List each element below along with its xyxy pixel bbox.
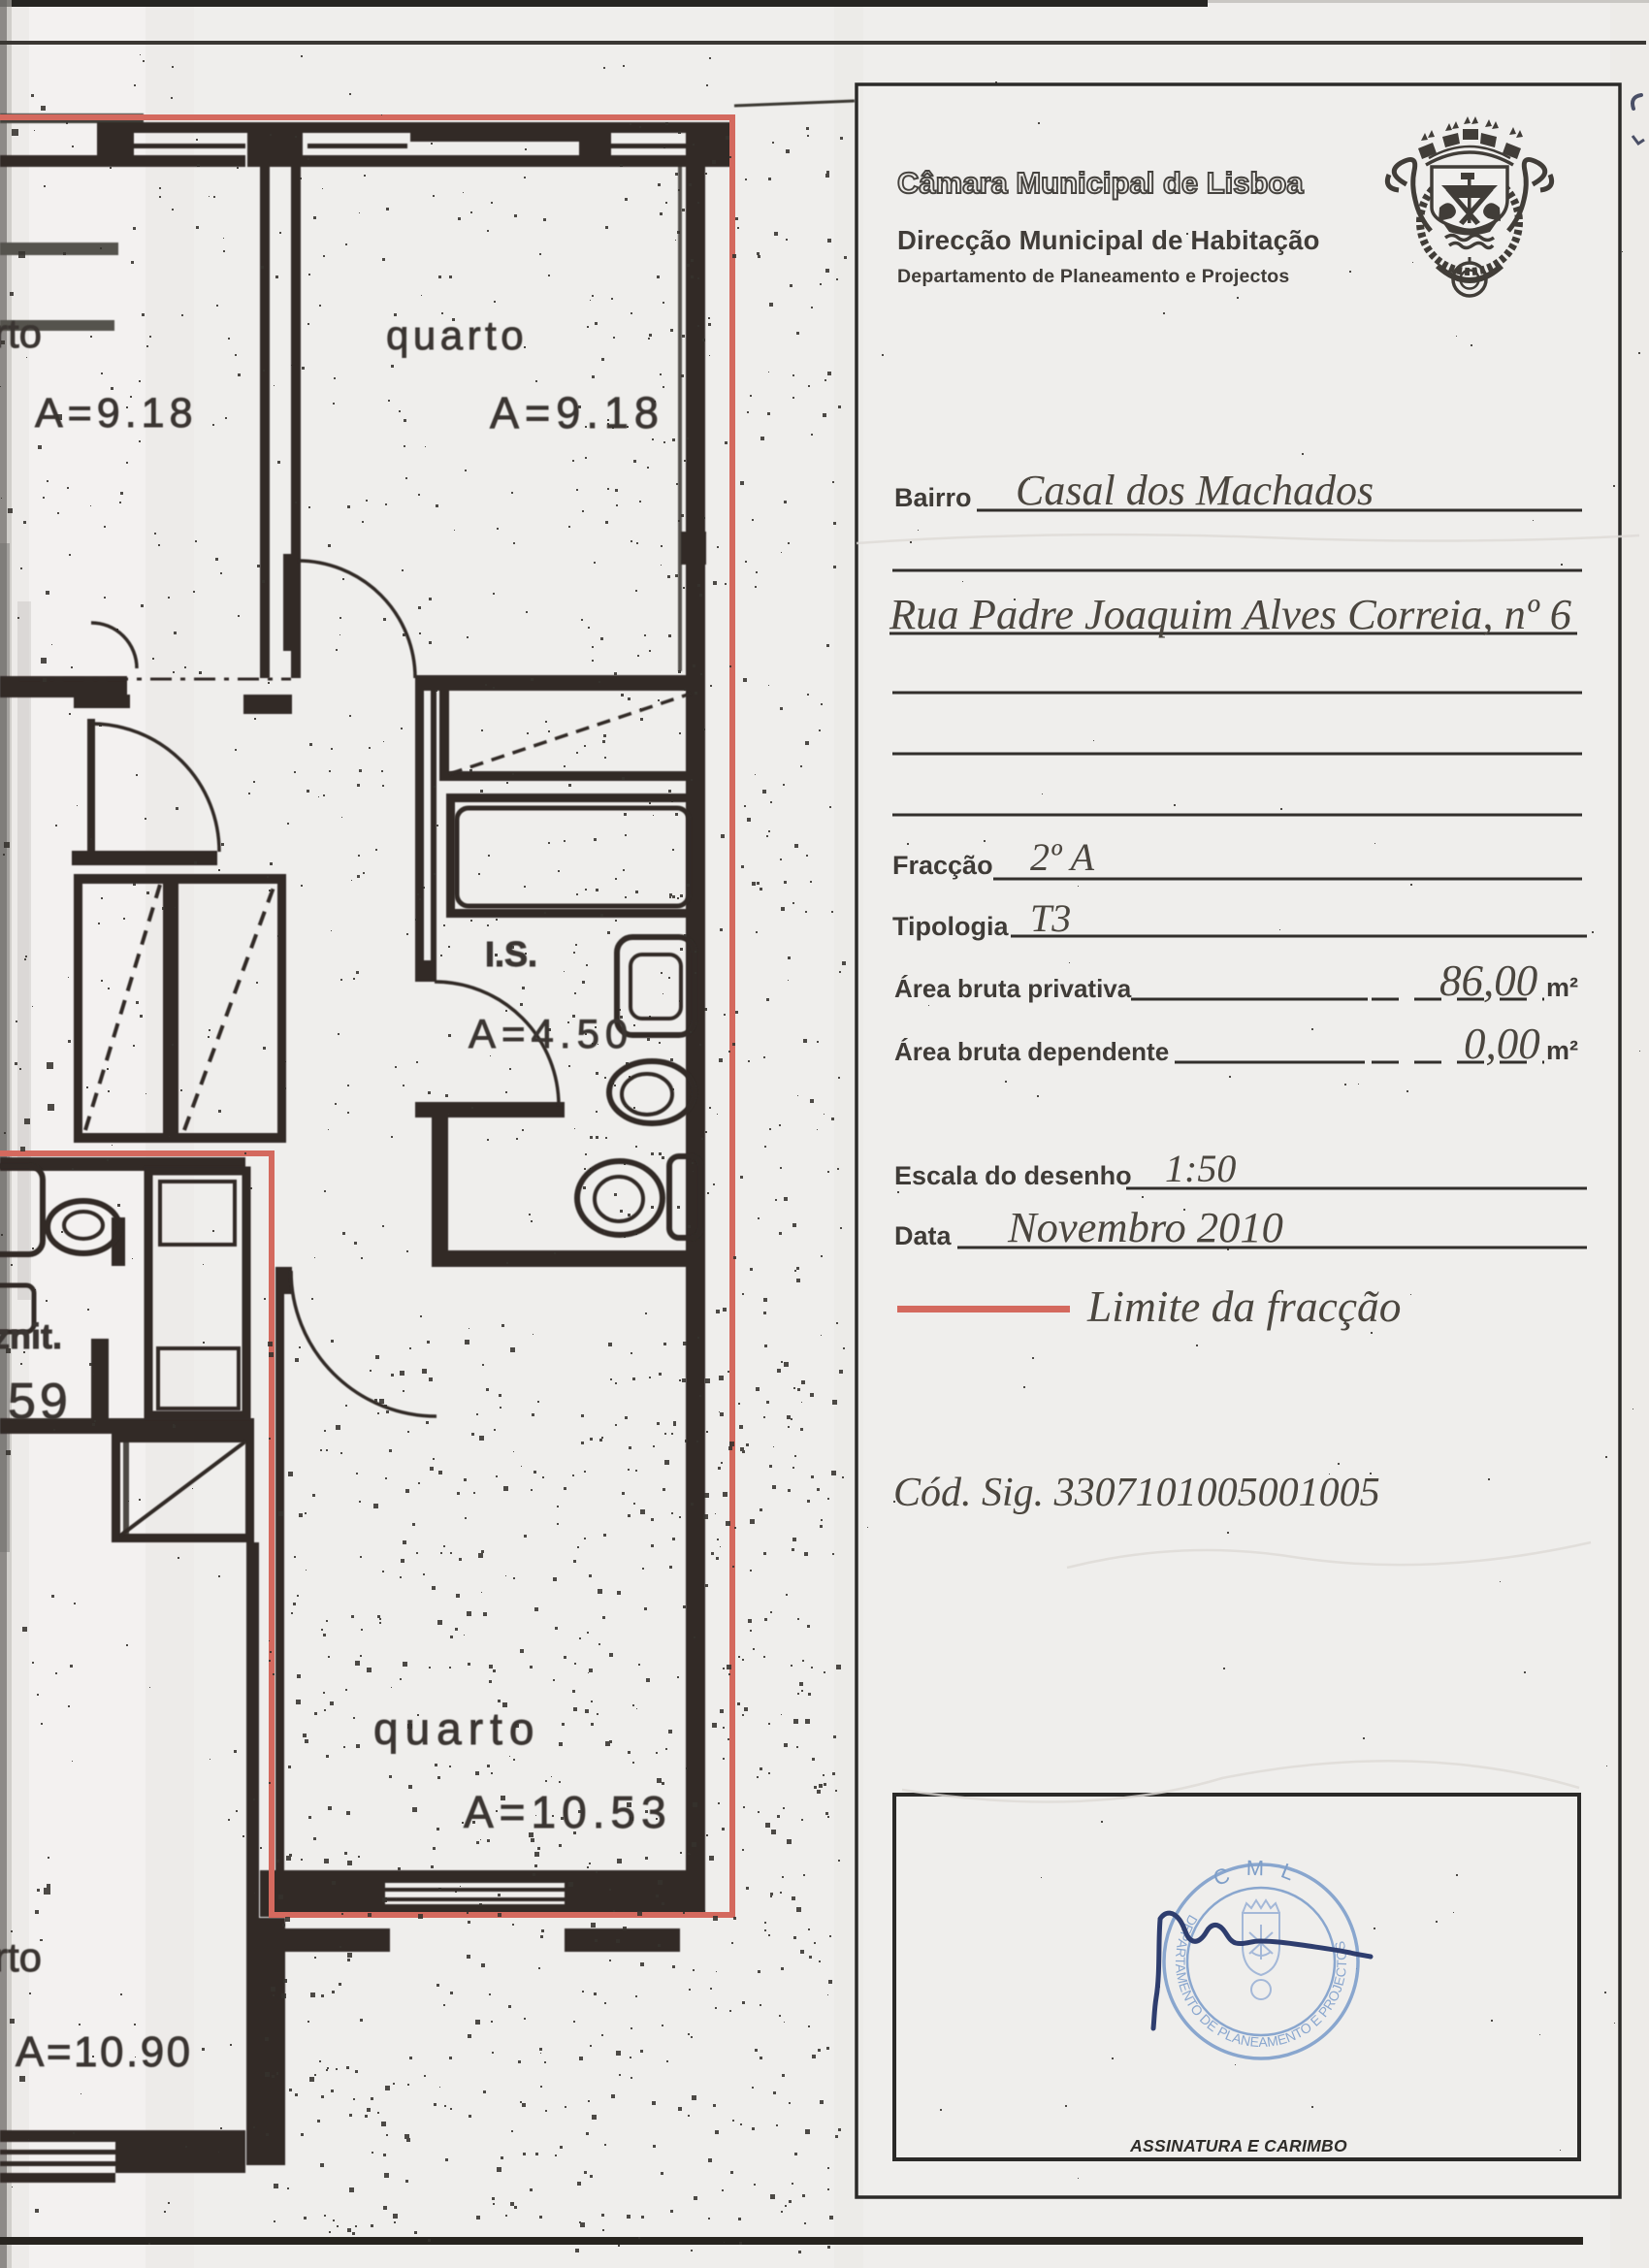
svg-text:Fracção: Fracção bbox=[892, 851, 993, 880]
svg-text:Casal dos Machados: Casal dos Machados bbox=[1016, 467, 1374, 514]
svg-text:T3: T3 bbox=[1030, 896, 1071, 940]
svg-text:A=10.90: A=10.90 bbox=[16, 2028, 193, 2076]
svg-text:rto: rto bbox=[0, 1934, 42, 1980]
svg-text:A=10.53: A=10.53 bbox=[464, 1787, 672, 1837]
svg-text:Novembro 2010: Novembro 2010 bbox=[1007, 1203, 1283, 1251]
svg-text:Data: Data bbox=[894, 1221, 953, 1250]
svg-text:59: 59 bbox=[8, 1374, 72, 1430]
svg-text:Rua Padre Joaquim Alves Correi: Rua Padre Joaquim Alves Correia, nº 6 bbox=[889, 590, 1572, 638]
svg-text:m²: m² bbox=[1546, 1036, 1578, 1065]
svg-text:Cód. Sig. 3307101005001005: Cód. Sig. 3307101005001005 bbox=[893, 1471, 1380, 1515]
svg-text:quarto: quarto bbox=[373, 1703, 540, 1754]
svg-text:ASSINATURA E CARIMBO: ASSINATURA E CARIMBO bbox=[1129, 2136, 1347, 2155]
svg-text:Área bruta dependente: Área bruta dependente bbox=[894, 1037, 1169, 1066]
svg-text:Escala do desenho: Escala do desenho bbox=[894, 1161, 1132, 1190]
svg-text:Tipologia: Tipologia bbox=[892, 912, 1009, 941]
svg-text:2º A: 2º A bbox=[1030, 835, 1095, 879]
svg-text:quarto: quarto bbox=[386, 312, 528, 358]
svg-text:0,00: 0,00 bbox=[1464, 1020, 1540, 1068]
svg-text:Direcção Municipal de Habitaçã: Direcção Municipal de Habitação bbox=[897, 225, 1320, 255]
svg-text:rto: rto bbox=[0, 310, 42, 356]
svg-text:86,00: 86,00 bbox=[1439, 956, 1537, 1005]
svg-text:1:50: 1:50 bbox=[1165, 1147, 1236, 1190]
svg-text:Câmara Municipal de Lisboa: Câmara Municipal de Lisboa bbox=[897, 166, 1304, 200]
svg-text:m²: m² bbox=[1546, 973, 1578, 1002]
svg-text:A=4.50: A=4.50 bbox=[469, 1011, 633, 1056]
svg-text:A=9.18: A=9.18 bbox=[35, 390, 197, 437]
svg-text:Bairro: Bairro bbox=[894, 483, 972, 512]
svg-text:I.S.: I.S. bbox=[485, 934, 537, 974]
svg-text:Departamento de Planeamento e: Departamento de Planeamento e Projectos bbox=[897, 266, 1289, 287]
svg-text:Área bruta privativa: Área bruta privativa bbox=[894, 974, 1132, 1003]
svg-text:Limite da fracção: Limite da fracção bbox=[1086, 1281, 1402, 1331]
svg-text:A=9.18: A=9.18 bbox=[490, 388, 664, 437]
